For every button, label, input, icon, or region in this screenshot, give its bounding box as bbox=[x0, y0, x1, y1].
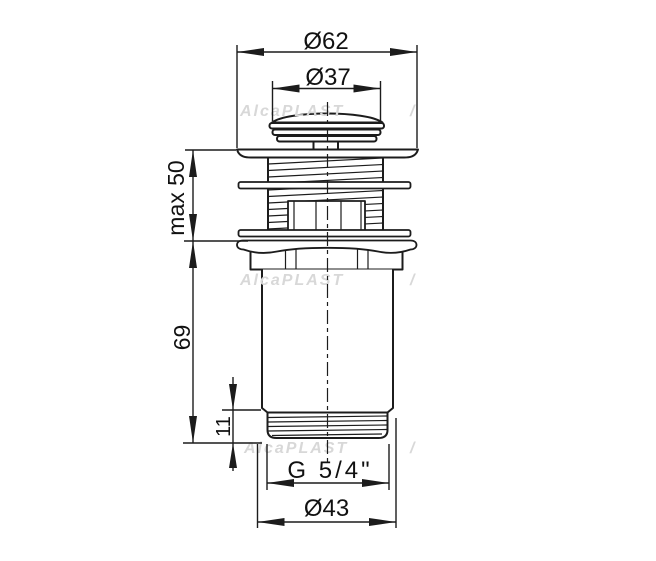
watermark-fragment: / bbox=[409, 440, 416, 457]
cap-rib-3 bbox=[277, 136, 377, 142]
dim-arrow-right bbox=[390, 48, 417, 56]
dim-arrow-up bbox=[189, 150, 197, 177]
watermark-fragment: / bbox=[409, 272, 416, 289]
watermark-fragment: / bbox=[409, 103, 416, 120]
dim-label-d62: Ø62 bbox=[303, 28, 348, 55]
dimension-max50: max 50 bbox=[163, 150, 248, 241]
dim-arrow-down bbox=[229, 384, 237, 410]
dim-arrow-right bbox=[369, 518, 396, 526]
upper-lock-washer bbox=[239, 182, 411, 189]
dim-arrow-up bbox=[189, 241, 197, 268]
dim-label-thread: G 5/4" bbox=[287, 457, 372, 484]
dim-arrow-down bbox=[189, 214, 197, 241]
adjustment-nut bbox=[288, 201, 365, 231]
dim-arrow-up bbox=[229, 443, 237, 468]
cap-rib-2 bbox=[273, 130, 381, 136]
dim-arrow-right bbox=[354, 85, 381, 93]
drain-valve-drawing: AlcaPLAST AlcaPLAST AlcaPLAST / / / Ø62 … bbox=[0, 0, 656, 561]
dim-label-11: 11 bbox=[213, 416, 235, 437]
dim-label-d43: Ø43 bbox=[304, 495, 349, 522]
cap-rib-1 bbox=[270, 123, 385, 129]
dim-label-d37: Ø37 bbox=[305, 64, 350, 91]
watermark-text: AlcaPLAST bbox=[239, 272, 344, 289]
dim-arrow-down bbox=[189, 416, 197, 443]
dim-label-69: 69 bbox=[169, 325, 195, 351]
dim-arrow-left bbox=[237, 48, 264, 56]
watermark-text: AlcaPLAST bbox=[239, 103, 344, 120]
dim-arrow-left bbox=[273, 85, 300, 93]
technical-drawing-page: AlcaPLAST AlcaPLAST AlcaPLAST / / / Ø62 … bbox=[0, 0, 656, 561]
dim-arrow-left bbox=[258, 518, 285, 526]
lower-lock-washer bbox=[239, 230, 411, 237]
dim-label-max50: max 50 bbox=[163, 160, 189, 235]
